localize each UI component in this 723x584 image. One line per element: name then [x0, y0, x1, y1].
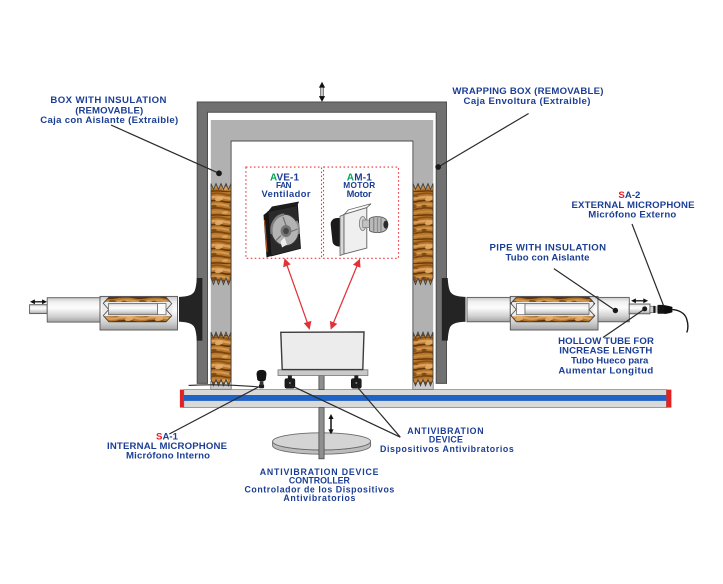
- svg-text:DEVICE: DEVICE: [429, 434, 463, 444]
- svg-text:Ventilador: Ventilador: [262, 189, 311, 199]
- svg-text:Micrófono Externo: Micrófono Externo: [588, 210, 676, 221]
- svg-text:Antivibratorios: Antivibratorios: [283, 493, 355, 503]
- svg-text:Caja con Aislante (Extraible): Caja con Aislante (Extraible): [40, 115, 178, 126]
- svg-text:Motor: Motor: [347, 189, 372, 199]
- svg-text:Dispositivos Antivibratorios: Dispositivos Antivibratorios: [380, 444, 514, 454]
- svg-text:Micrófono Interno: Micrófono Interno: [126, 450, 210, 461]
- svg-text:Tubo con Aislante: Tubo con Aislante: [506, 252, 590, 263]
- svg-text:Caja Envoltura (Extraible): Caja Envoltura (Extraible): [464, 96, 591, 107]
- svg-text:Aumentar Longitud: Aumentar Longitud: [558, 365, 653, 376]
